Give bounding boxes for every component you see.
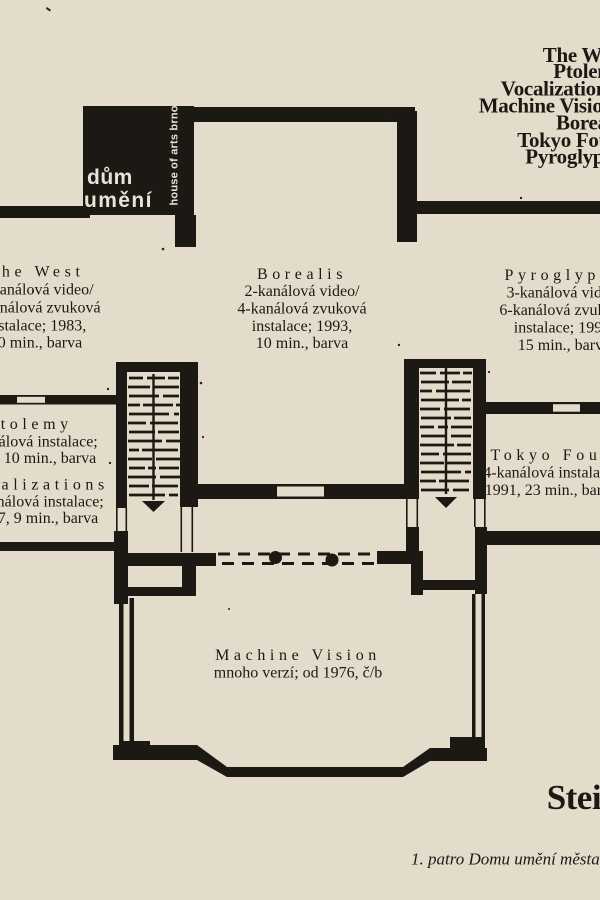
svg-text:1987, 9 min., barva: 1987, 9 min., barva — [0, 510, 98, 527]
svg-text:4-kanálová instalace;: 4-kanálová instalace; — [483, 465, 600, 482]
svg-text:mnoho verzí; od 1976, č/b: mnoho verzí; od 1976, č/b — [214, 665, 382, 682]
svg-text:4-kanálová instalace;: 4-kanálová instalace; — [0, 433, 98, 450]
svg-text:4-kanálová zvuková: 4-kanálová zvuková — [237, 301, 366, 318]
svg-text:4-kanálová zvuková: 4-kanálová zvuková — [0, 299, 101, 316]
svg-text:umění: umění — [84, 189, 153, 212]
svg-text:Pyroglyphs: Pyroglyphs — [505, 267, 600, 284]
svg-text:1. patro Domu umění města Brna: 1. patro Domu umění města Brna — [411, 850, 600, 869]
svg-text:2-kanálová video/: 2-kanálová video/ — [244, 283, 360, 300]
svg-text:10 min., barva: 10 min., barva — [0, 335, 82, 352]
svg-text:Tokyo Four: Tokyo Four — [491, 447, 600, 464]
svg-text:6-kanálová zvuková: 6-kanálová zvuková — [499, 302, 600, 319]
svg-text:instalace; 1995,: instalace; 1995, — [514, 320, 600, 337]
svg-text:Borealis: Borealis — [257, 266, 347, 283]
svg-text:Steina: Steina — [547, 778, 600, 817]
svg-text:Machine Vision: Machine Vision — [215, 647, 381, 664]
svg-text:15 min., barva: 15 min., barva — [518, 337, 600, 354]
svg-text:Vocalizations: Vocalizations — [0, 477, 109, 494]
svg-text:10 min., barva: 10 min., barva — [256, 335, 348, 352]
svg-text:1985, 10 min., barva: 1985, 10 min., barva — [0, 450, 96, 467]
svg-text:3-kanálová video/: 3-kanálová video/ — [506, 285, 600, 302]
svg-text:instalace; 1993,: instalace; 1993, — [252, 318, 352, 335]
svg-text:2-kanálová video/: 2-kanálová video/ — [0, 281, 94, 298]
svg-text:dům: dům — [87, 166, 133, 189]
svg-text:6-kanálová instalace;: 6-kanálová instalace; — [0, 494, 104, 511]
svg-text:Ptolemy: Ptolemy — [0, 416, 73, 433]
svg-text:The West: The West — [0, 263, 84, 280]
svg-text:Pyroglyphs: Pyroglyphs — [525, 144, 600, 168]
svg-text:house of arts brno: house of arts brno — [169, 105, 181, 205]
svg-text:instalace; 1983,: instalace; 1983, — [0, 317, 86, 334]
svg-text:1991, 23 min., barva: 1991, 23 min., barva — [485, 482, 600, 499]
